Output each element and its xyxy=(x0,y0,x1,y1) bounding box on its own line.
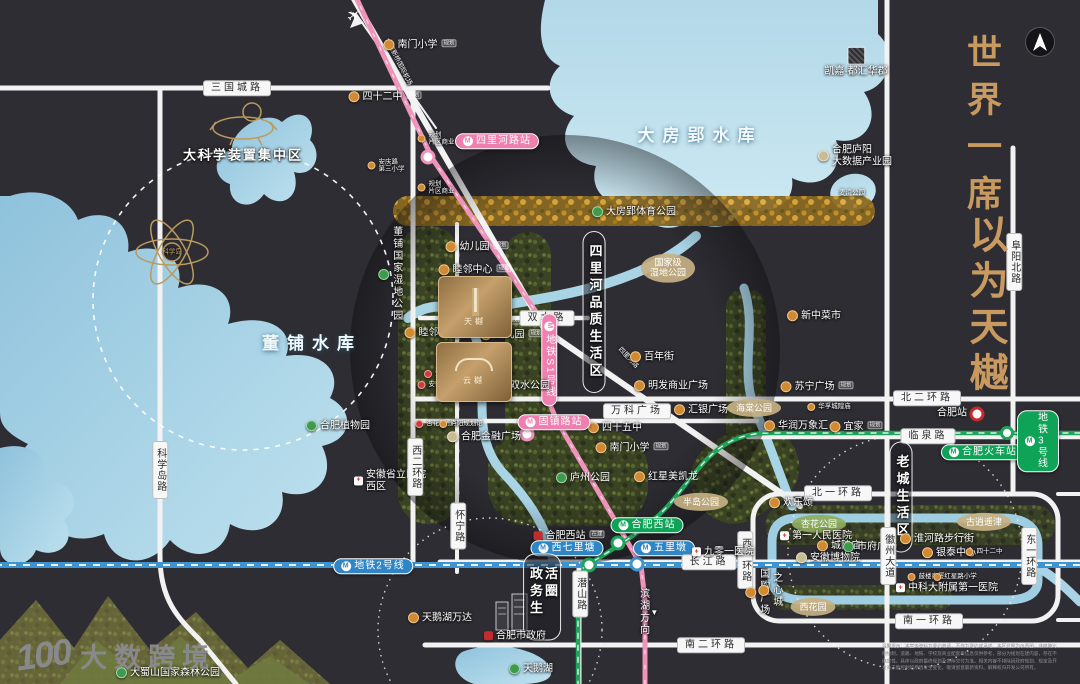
poi-icon xyxy=(908,573,916,581)
hefei-west-station-pill-text: 合肥西站 xyxy=(632,519,676,531)
kindergarten-1-text: 幼儿园 xyxy=(459,241,489,253)
poi-icon xyxy=(922,548,933,559)
down-arrow-icon: ▼ xyxy=(650,608,659,619)
bigdata-park-text: 合肥庐阳 大数据产业园 xyxy=(832,145,892,168)
compass-icon xyxy=(1026,28,1054,56)
city-government-label: 合肥市政府 xyxy=(484,630,546,642)
huizhou-ave-label: 徽州大道 xyxy=(880,527,896,585)
huiyin-plaza-text: 汇银广场 xyxy=(688,404,728,416)
bigdata-park-label: 合肥庐阳 大数据产业园 xyxy=(818,145,892,168)
mixc-mall-label: 华润万象汇 xyxy=(764,420,828,432)
brand-name: 大数跨境 xyxy=(80,636,216,675)
silihe-station-text: 四里河路站 xyxy=(476,135,531,147)
poi-icon xyxy=(900,534,911,545)
science-island-label: 科学岛 xyxy=(162,248,182,255)
swan-lake-text: 天鹅湖 xyxy=(523,663,553,675)
anhui-museum-text: 安徽博物院 xyxy=(810,552,860,564)
maiwan-park-label: 麦湾公园 xyxy=(839,189,865,196)
mulin-center-1-text: 睦邻中心 xyxy=(452,264,492,276)
hefei-rail-station-text: 合肥火车站 xyxy=(962,446,1017,458)
plan-biz-2-label: 规划 片区商业 xyxy=(418,181,455,196)
metro-icon: M xyxy=(641,543,651,553)
anqing-school-text: 安庆路 第三小学 xyxy=(379,159,405,174)
railway-icon xyxy=(484,632,493,641)
big-science-zone-text: 大科学装置集中区 xyxy=(183,149,303,164)
big-science-zone-label: 大科学装置集中区 xyxy=(183,149,303,164)
poi-red-icon xyxy=(415,420,423,428)
status-badge: 规划 xyxy=(653,442,668,450)
poi-icon xyxy=(758,585,769,596)
huiyin-plaza-label: 汇银广场 xyxy=(674,404,728,416)
luyang-hall-label: 庐阳规划馆 xyxy=(439,420,483,428)
finance-plaza-label: 合肥金融广场 xyxy=(447,431,521,443)
no45-school-text: 四十五中 xyxy=(602,422,642,434)
slogan-line-1: 世界一席 xyxy=(956,34,1007,222)
luzhou-park-label: 庐州公园 xyxy=(556,472,610,484)
brand-watermark: 100 大数跨境 xyxy=(16,634,216,676)
park-icon xyxy=(509,664,520,675)
poi-icon xyxy=(933,573,941,581)
poi-icon xyxy=(764,421,775,432)
oldtown-zone-text: 老城生活区 xyxy=(894,455,909,540)
qianshan-rd-label: 潜山路 xyxy=(572,571,588,618)
changjiang-rd-text: 长江路 xyxy=(690,556,729,568)
park-icon xyxy=(843,542,854,553)
hospital-icon: + xyxy=(896,584,905,593)
poi-icon xyxy=(966,548,974,556)
park-icon xyxy=(378,269,389,280)
huanlesong-label: 欢乐颂 xyxy=(769,497,813,509)
anhui-museum-label: 安徽博物院 xyxy=(796,552,860,564)
landmark-icon xyxy=(818,151,829,162)
poi-icon xyxy=(418,135,426,143)
metro-line2-label: M地铁2号线 xyxy=(333,558,413,574)
north1ring-rd-label: 北一环路 xyxy=(804,485,872,501)
poi-icon xyxy=(807,403,815,411)
poi-icon xyxy=(595,443,606,454)
mingfa-plaza-text: 明发商业广场 xyxy=(648,380,708,392)
plan-biz-1-text: 规划 片区商业 xyxy=(429,132,455,147)
luyang-hall-text: 庐阳规划馆 xyxy=(450,420,483,427)
duhui-project-label: 凯嘉·都汇华郡 xyxy=(824,47,887,78)
poi-icon xyxy=(404,328,415,339)
binhu-direction-label: 滨湖方向▼ xyxy=(637,588,659,636)
wulidun-station-text: 五里墩 xyxy=(654,542,687,554)
vanke-plaza-text: 万科广场 xyxy=(611,405,663,417)
xinzhong-market-text: 新中菜市 xyxy=(801,310,841,322)
sanguo-rd-label: 三国城路 xyxy=(203,80,271,96)
dongpu-lake-label: 董铺水库 xyxy=(262,334,362,354)
hefei-west-station-pill-label: M合肥西站 xyxy=(611,517,684,533)
south2ring-rd-label: 南二环路 xyxy=(677,637,745,653)
south1ring-rd-label: 南一环路 xyxy=(895,613,963,629)
poi-icon xyxy=(829,422,840,433)
ustc-hospital-text: 中科大附属第一医院 xyxy=(908,582,998,594)
metro-line3-text: 地铁3号线 xyxy=(1038,412,1051,470)
disclaimer-text: 温馨提示：本宣传资料为要约邀请，不作为要约或承诺。本区位图为示意图，非精确比例绘… xyxy=(882,644,1059,673)
nanmen-school-2-label: 南门小学规划 xyxy=(595,442,668,454)
hongxinglu-school-text: 红星路小学 xyxy=(944,573,977,580)
status-badge: 在建 xyxy=(589,530,604,538)
no45-school-label: 四十五中 xyxy=(588,422,642,434)
poi-icon xyxy=(634,472,645,483)
huaihe-walkstreet-text: 淮河路步行街 xyxy=(914,533,974,545)
hongxing-macalline-label: 红星美凯龙 xyxy=(634,471,698,483)
national-wetland-text: 国家级 湿地公园 xyxy=(650,258,686,279)
no42-school-label: 四十二中规划 xyxy=(348,91,421,103)
qianshan-rd-text: 潜山路 xyxy=(574,578,586,611)
status-badge: 规划 xyxy=(838,381,853,389)
west2ring-rd-label: 西二环路 xyxy=(407,438,423,496)
hefei-rail-station-label: M合肥火车站 xyxy=(941,444,1025,460)
north1ring-rd-text: 北一环路 xyxy=(812,487,864,499)
dafangying-lake-text: 大房郢水库 xyxy=(638,126,763,146)
metro-icon: M xyxy=(619,520,629,530)
dafangying-lake-label: 大房郢水库 xyxy=(638,126,763,146)
status-badge: 规划 xyxy=(493,241,508,249)
binhu-direction-text: 滨湖方向 xyxy=(637,588,649,636)
botanic-garden-text: 合肥植物园 xyxy=(320,420,370,432)
hospital-icon: + xyxy=(780,532,789,541)
metro-icon: M xyxy=(1025,436,1035,446)
south1ring-rd-text: 南一环路 xyxy=(903,615,955,627)
metro-line2-text: 地铁2号线 xyxy=(354,560,405,572)
linquan-rd-label: 临泉路 xyxy=(901,428,956,444)
hefei-station-text: 合肥站 xyxy=(937,407,967,419)
xiqilitang-station-text: 西七里塘 xyxy=(552,542,596,554)
duhui-project-text: 凯嘉·都汇华郡 xyxy=(824,66,887,78)
poi-icon xyxy=(787,311,798,322)
hefei-station-label: 合肥站 xyxy=(937,407,967,419)
hospital-icon: + xyxy=(692,548,701,557)
poi-icon xyxy=(769,498,780,509)
hongxing-macalline-text: 红星美凯龙 xyxy=(648,471,698,483)
poi-icon xyxy=(745,587,756,598)
south2ring-rd-text: 南二环路 xyxy=(685,639,737,651)
huanlesong-text: 欢乐颂 xyxy=(783,497,813,509)
huafu-label: 华孚城隍庙 xyxy=(807,403,851,411)
city-government-text: 合肥市政府 xyxy=(496,630,546,642)
hospital-icon: + xyxy=(354,477,363,486)
poi-icon xyxy=(439,420,447,428)
anqing-school-label: 安庆路 第三小学 xyxy=(368,159,405,174)
sanguo-rd-text: 三国城路 xyxy=(211,82,263,94)
metro-icon: M xyxy=(341,561,351,571)
poi-icon xyxy=(348,92,359,103)
project-card-2: 云樾 xyxy=(436,342,512,402)
kexuedao-rd-text: 科学岛路 xyxy=(154,448,166,492)
nanmen-school-2-text: 南门小学 xyxy=(609,442,649,454)
ikea-text: 宜家 xyxy=(843,421,863,433)
huaining-rd-text: 怀宁路 xyxy=(452,510,464,543)
hospital-901-label: +九零一医院 xyxy=(692,546,754,558)
poi-icon xyxy=(634,381,645,392)
silihe-zone-text: 四里河品质生活区 xyxy=(587,244,602,380)
mulin-center-1-label: 睦邻中心规划 xyxy=(438,264,511,276)
mingfa-plaza-label: 明发商业广场 xyxy=(634,380,708,392)
plan-biz-2-text: 规划 片区商业 xyxy=(429,181,455,196)
dongpu-wetland-label: 董铺国家湿地公园 xyxy=(378,226,402,322)
status-badge: 规划 xyxy=(441,39,456,47)
poi-icon xyxy=(780,382,791,393)
shuangshui-park-text: 双水公园 xyxy=(510,380,550,392)
poi-icon xyxy=(408,613,419,624)
status-badge: 规划 xyxy=(406,91,421,99)
poi-icon xyxy=(817,541,828,552)
huafu-text: 华孚城隍庙 xyxy=(818,403,851,410)
landmark-icon xyxy=(447,432,458,443)
guxiaoyaojin-text: 古逍遥津 xyxy=(966,517,1002,527)
science-island-text: 科学岛 xyxy=(162,248,182,255)
guzhen-station-text: 固镇路站 xyxy=(539,416,583,428)
project-card-2-caption: 云樾 xyxy=(463,375,485,386)
suning-plaza-label: 苏宁广场规划 xyxy=(780,381,853,393)
xinghua-park-text: 杏花公园 xyxy=(801,519,837,529)
poi-red-icon xyxy=(418,381,426,389)
finance-plaza-text: 合肥金融广场 xyxy=(461,431,521,443)
zhengwu-zone-label: 政务生活圈 xyxy=(523,554,561,641)
bainian-street-label: 百年街 xyxy=(630,351,674,363)
huaihe-walkstreet-label: 淮河路步行街 xyxy=(900,533,974,545)
kexuedao-rd-label: 科学岛路 xyxy=(152,441,168,499)
poi-icon xyxy=(674,405,685,416)
metro-line3-label: M地铁3号线 xyxy=(1017,410,1059,472)
hongxinglu-school-label: 红星路小学 xyxy=(933,573,977,581)
north2ring-rd-text: 北二环路 xyxy=(901,392,953,404)
east1ring-rd-text: 东一环路 xyxy=(1023,534,1035,578)
project-card-1: 天樾 xyxy=(438,276,512,338)
park-icon xyxy=(592,207,603,218)
metro-icon: M xyxy=(544,321,554,331)
suning-plaza-text: 苏宁广场 xyxy=(794,381,834,393)
poi-icon xyxy=(368,162,376,170)
zhixincheng-label: 之心城 xyxy=(758,572,782,608)
zhengwu-zone-text: 政务生活圈 xyxy=(527,567,557,628)
ustc-hospital-label: +中科大附属第一医院 xyxy=(896,582,998,594)
swan-lake-label: 天鹅湖 xyxy=(509,663,553,675)
mixc-mall-text: 华润万象汇 xyxy=(778,420,828,432)
dfy-sports-park-label: 大房郢体育公园 xyxy=(592,206,676,218)
poi-icon xyxy=(418,184,426,192)
arch-glyph-icon xyxy=(455,358,493,371)
railway-icon xyxy=(533,532,542,541)
huaining-rd-label: 怀宁路 xyxy=(450,503,466,550)
no42-school-2-label: 四十二中 xyxy=(966,548,1003,556)
metro-icon: M xyxy=(463,136,473,146)
bandao-park-text: 半岛公园 xyxy=(683,497,719,507)
north2ring-rd-label: 北二环路 xyxy=(893,390,961,406)
vanke-plaza-label: 万科广场 xyxy=(603,403,671,419)
ikea-label: 宜家规划 xyxy=(829,421,882,433)
poi-icon xyxy=(630,352,641,363)
poi-red-icon xyxy=(424,370,432,378)
poi-icon xyxy=(445,242,456,253)
status-badge: 规划 xyxy=(496,264,511,272)
silihe-station-label: M四里河路站 xyxy=(455,133,539,149)
swanlake-wanda-text: 天鹅湖万达 xyxy=(422,612,472,624)
west2ring-rd-text: 西二环路 xyxy=(409,445,421,489)
nanmen-school-1-label: 南门小学规划 xyxy=(383,39,456,51)
plan-biz-1-label: 规划 片区商业 xyxy=(418,132,455,147)
status-badge: 规划 xyxy=(867,421,882,429)
project-logo-icon xyxy=(847,47,865,65)
dongpu-lake-text: 董铺水库 xyxy=(262,334,362,354)
xinzhong-market-label: 新中菜市 xyxy=(787,310,841,322)
poi-icon xyxy=(438,265,449,276)
metro-s1-label: M地铁S1号线 xyxy=(541,313,557,406)
zhixincheng-text: 之心城 xyxy=(770,572,782,608)
landmark-icon xyxy=(796,553,807,564)
metro-icon: M xyxy=(539,543,549,553)
maiwan-park-text: 麦湾公园 xyxy=(839,189,865,196)
silihe-zone-label: 四里河品质生活区 xyxy=(583,231,606,393)
huizhou-ave-text: 徽州大道 xyxy=(882,534,894,578)
linquan-rd-text: 临泉路 xyxy=(909,430,948,442)
botanic-garden-label: 合肥植物园 xyxy=(306,420,370,432)
national-wetland-label: 国家级 湿地公园 xyxy=(641,254,695,283)
bainian-street-text: 百年街 xyxy=(644,351,674,363)
tower-glyph-icon xyxy=(474,288,477,312)
swanlake-wanda-label: 天鹅湖万达 xyxy=(408,612,472,624)
brand-mark: 100 xyxy=(13,630,72,679)
kindergarten-1-label: 幼儿园规划 xyxy=(445,241,508,253)
metro-icon: M xyxy=(949,447,959,457)
slogan-line-2: 以为天樾 xyxy=(957,214,1013,398)
luzhou-park-text: 庐州公园 xyxy=(570,472,610,484)
location-map: ✈ xyxy=(0,0,1080,684)
east1ring-rd-label: 东一环路 xyxy=(1021,527,1037,585)
xihuayuan-text: 西花园 xyxy=(799,602,826,612)
dongpu-wetland-text: 董铺国家湿地公园 xyxy=(390,226,402,322)
poi-icon xyxy=(383,40,394,51)
park-icon xyxy=(306,421,317,432)
no42-school-text: 四十二中 xyxy=(362,91,402,103)
project-card-1-caption: 天樾 xyxy=(464,316,486,327)
hospital-901-text: 九零一医院 xyxy=(704,546,754,558)
haitang-park-text: 海棠公园 xyxy=(736,403,772,413)
no42-school-2-text: 四十二中 xyxy=(977,548,1003,555)
dfy-sports-park-text: 大房郢体育公园 xyxy=(606,206,676,218)
metro-icon: M xyxy=(526,417,536,427)
nanmen-school-1-text: 南门小学 xyxy=(397,39,437,51)
guzhen-station-label: M固镇路站 xyxy=(518,414,591,430)
park-icon xyxy=(556,473,567,484)
